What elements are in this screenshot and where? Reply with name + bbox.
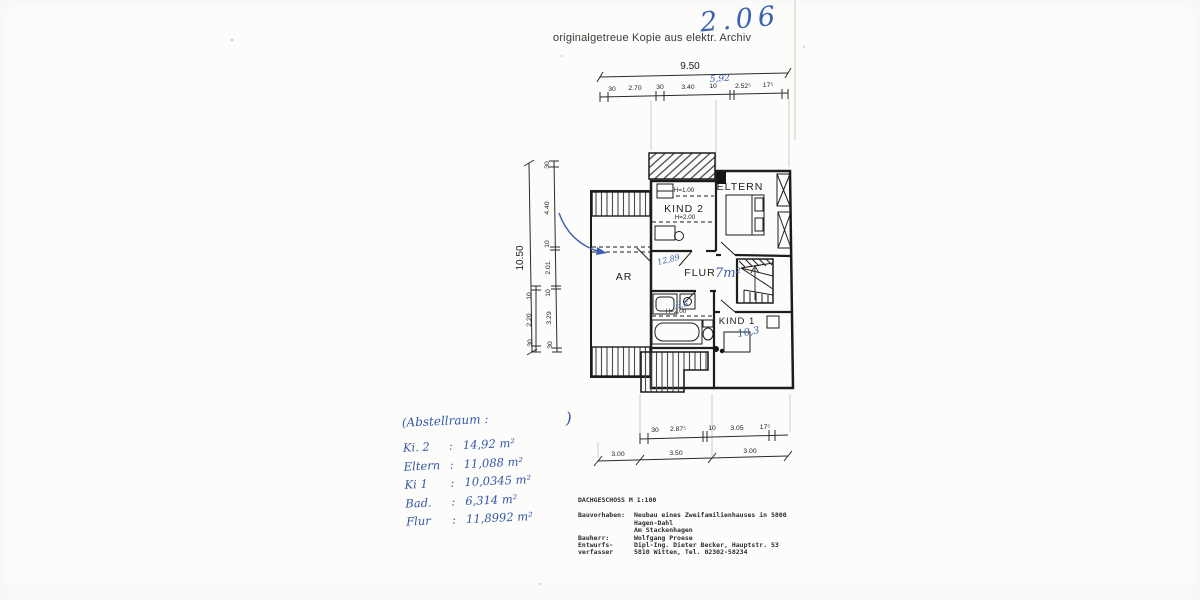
room-label-kind1: KIND 1 [719, 316, 756, 327]
dim-seg: 2.87⁵ [670, 426, 686, 433]
titleblock-label: verfasser [578, 549, 634, 556]
handwritten-flur-area: 7m² [715, 266, 741, 281]
note-row: Ki. 2 : 14,92 m² [403, 433, 573, 454]
balcony-hatch-top [649, 153, 715, 179]
note-colon: : [451, 494, 466, 509]
note-value: 14,92 m² [463, 436, 516, 452]
note-colon: : [452, 512, 467, 527]
titleblock-text: 5810 Witten, Tel. 02302-58234 [634, 549, 748, 556]
dim-seg: 3.40 [681, 84, 694, 91]
door-kind1 [721, 300, 735, 312]
dim-seg: 3.00 [743, 448, 756, 455]
dim-seg: 3.05 [730, 425, 743, 432]
dim-seg: 3.00 [611, 451, 624, 458]
dim-chain-bottom: 30 2.87⁵ 10 3.05 17⁵ 3.00 3.50 3.00 [594, 394, 792, 466]
notes-heading-close: ) [565, 408, 572, 427]
titleblock-label: Bauvorhaben: [578, 512, 634, 527]
dim-seg: 17⁵ [763, 82, 774, 89]
height-label-h100: H=1.00 [674, 187, 695, 194]
balcony-hatch-bottom [641, 352, 708, 392]
handwritten-bad-area: 6,6 [675, 299, 689, 310]
titleblock-row: Bauvorhaben: Neubau eines Zweifamilienha… [578, 512, 798, 527]
note-row: Ki 1 : 10,0345 m² [404, 470, 574, 491]
dim-seg: 30 [547, 341, 554, 349]
note-colon: : [450, 475, 465, 490]
dim-left-total: 10.50 [515, 245, 526, 270]
note-label: Ki 1 [404, 476, 451, 492]
note-label: Bad. [405, 494, 452, 510]
dim-seg: 30 [651, 427, 659, 434]
height-label-h200-kind2: H=2.00 [675, 214, 696, 221]
roof-hatch-top-left [592, 192, 650, 216]
handwritten-arrowhead [596, 247, 607, 255]
title-block: DACHGESCHOSS M 1:100 Bauvorhaben: Neubau… [578, 497, 798, 557]
dim-seg: 30 [656, 84, 664, 91]
dim-seg: 30 [608, 86, 616, 93]
note-row: Bad. : 6,314 m² [405, 489, 575, 510]
dim-seg: 2.52⁵ [735, 83, 751, 90]
notes-heading: (Abstellraum : [402, 412, 489, 435]
dim-seg: 30 [544, 161, 551, 169]
door-eltern [721, 242, 735, 255]
dim-seg: 10 [526, 292, 533, 300]
note-row: Eltern : 11,088 m² [403, 452, 573, 473]
scanned-floor-plan-page: originalgetreue Kopie aus elektr. Archiv… [0, 0, 1200, 600]
room-label-ar: AR [616, 271, 633, 283]
dim-chain-top: 9.50 30 2.70 30 3.40 10 2.52⁵ 17⁵ 5,92 [597, 61, 791, 167]
door-kind2 [679, 251, 692, 266]
handwritten-flur-calc: 12,89 [656, 253, 680, 267]
note-label: Ki. 2 [403, 439, 450, 455]
handwritten-arrow [559, 213, 600, 252]
note-value: 10,0345 m² [464, 472, 531, 489]
handwritten-area-notes: (Abstellraum : ) Ki. 2 : 14,92 m² Eltern… [402, 408, 577, 533]
dim-seg: 30 [527, 339, 534, 347]
note-label: Eltern [403, 457, 450, 473]
dim-seg: 3.50 [669, 450, 682, 457]
note-label: Flur [406, 513, 453, 529]
drawing-title: DACHGESCHOSS M 1:100 [578, 497, 798, 504]
titleblock-text: Neubau eines Zweifamilienhauses in 5800 … [634, 512, 798, 527]
dim-chain-left: 10.50 30 4.40 10 2.01 10 3.29 30 10 2.20… [515, 160, 562, 355]
dim-seg: 10 [708, 425, 716, 432]
note-value: 6,314 m² [465, 491, 518, 507]
door-ar [637, 248, 651, 262]
dim-seg: 10 [544, 240, 551, 248]
dim-seg: 3.29 [546, 311, 553, 324]
note-colon: : [449, 438, 464, 453]
note-row: Flur : 11,8992 m² [406, 507, 576, 528]
note-colon: : [449, 457, 464, 472]
dim-seg: 4.40 [544, 201, 551, 214]
note-value: 11,8992 m² [466, 509, 533, 526]
dim-seg: 2.70 [628, 85, 641, 92]
titleblock-row: verfasser 5810 Witten, Tel. 02302-58234 [578, 549, 798, 556]
handwritten-dim-top: 5,92 [710, 74, 731, 85]
room-label-flur: FLUR [684, 267, 715, 279]
handwritten-kind1-area: 10,3 [737, 325, 761, 340]
dim-seg: 17⁵ [760, 424, 771, 431]
dim-seg: 2.01 [545, 261, 552, 274]
note-value: 11,088 m² [463, 454, 523, 471]
dim-seg: 2.20 [526, 313, 533, 326]
dim-seg: 10 [545, 289, 552, 297]
dim-top-total: 9.50 [680, 61, 700, 72]
stairs [737, 259, 773, 303]
room-label-eltern: ELTERN [717, 181, 764, 193]
